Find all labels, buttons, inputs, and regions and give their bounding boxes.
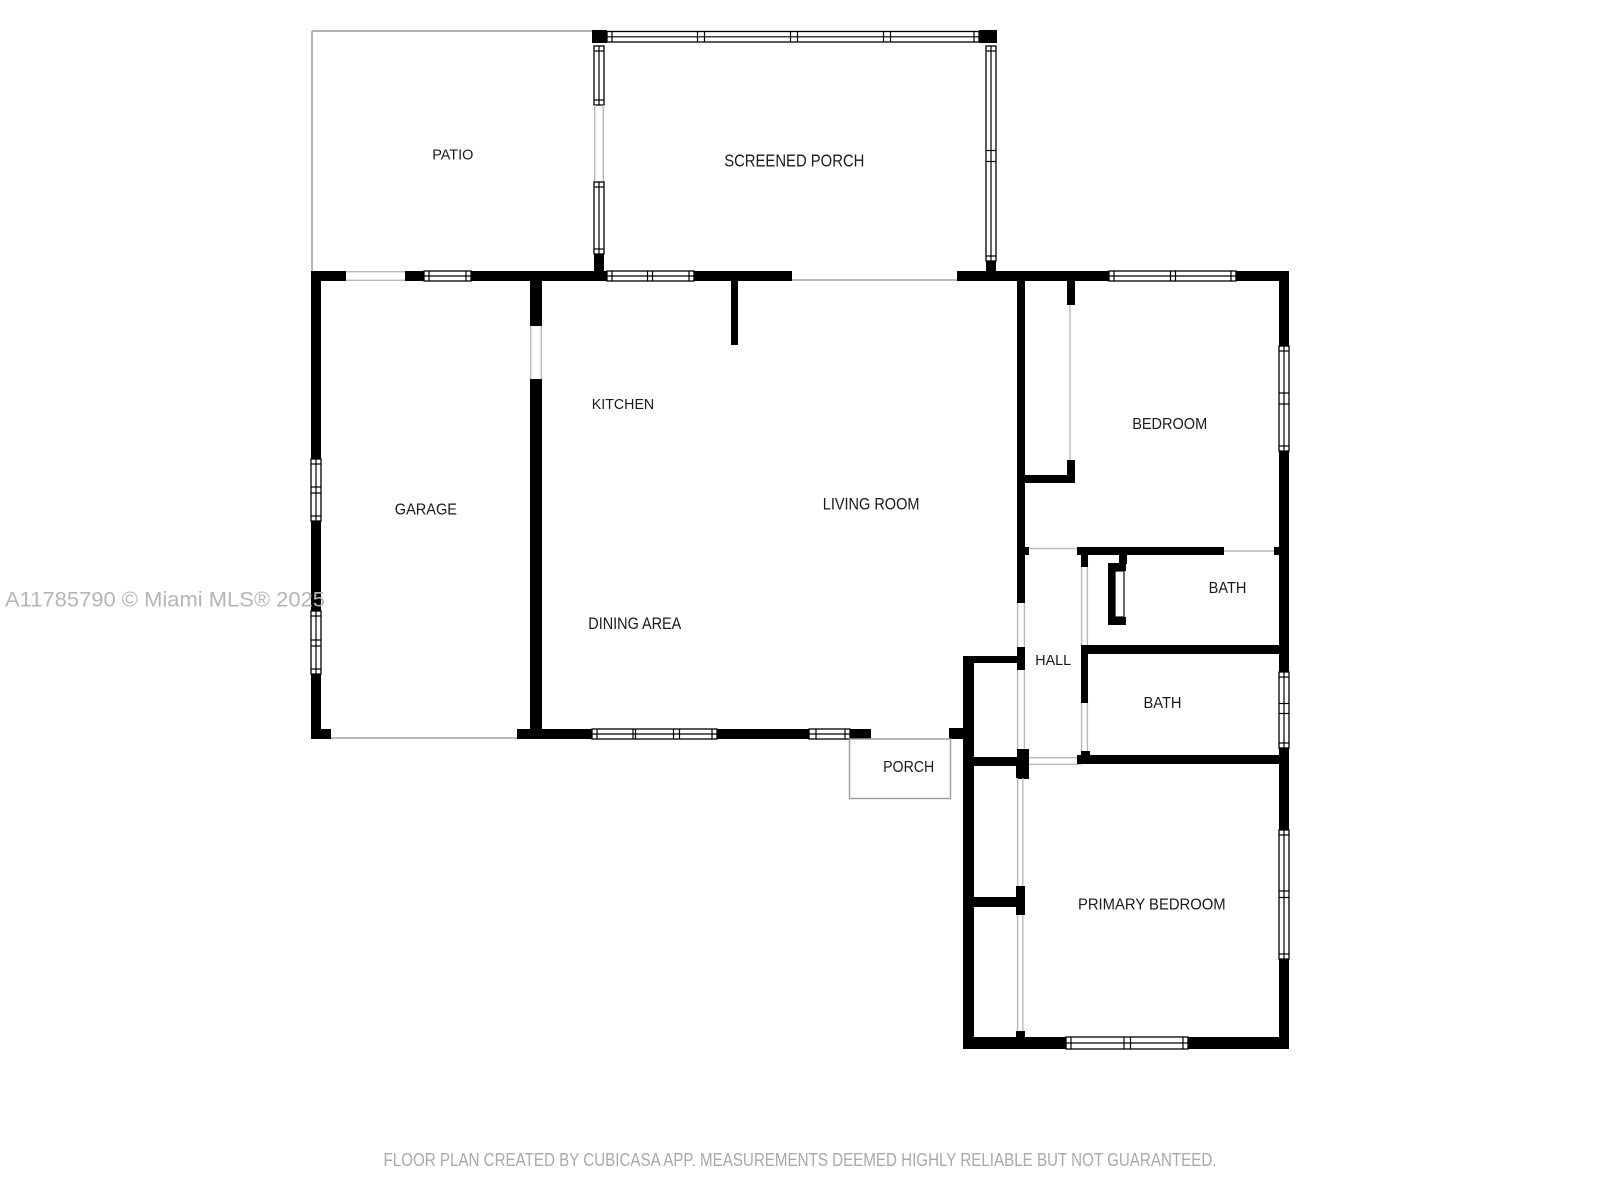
svg-text:PRIMARY BEDROOM: PRIMARY BEDROOM [1078,897,1226,914]
svg-text:BATH: BATH [1209,580,1247,597]
svg-text:BATH: BATH [1143,695,1181,712]
svg-text:FLOOR PLAN CREATED BY CUBICASA: FLOOR PLAN CREATED BY CUBICASA APP. MEAS… [384,1149,1217,1170]
svg-text:PATIO: PATIO [432,147,473,164]
svg-text:HALL: HALL [1035,652,1071,669]
svg-text:LIVING ROOM: LIVING ROOM [823,494,920,513]
svg-text:PORCH: PORCH [883,759,934,776]
svg-text:KITCHEN: KITCHEN [592,396,654,413]
svg-text:DINING AREA: DINING AREA [588,614,682,633]
svg-text:BEDROOM: BEDROOM [1132,415,1207,433]
svg-text:GARAGE: GARAGE [395,502,457,519]
svg-text:A11785790 © Miami MLS® 2025: A11785790 © Miami MLS® 2025 [5,587,325,611]
svg-text:SCREENED PORCH: SCREENED PORCH [724,150,864,170]
